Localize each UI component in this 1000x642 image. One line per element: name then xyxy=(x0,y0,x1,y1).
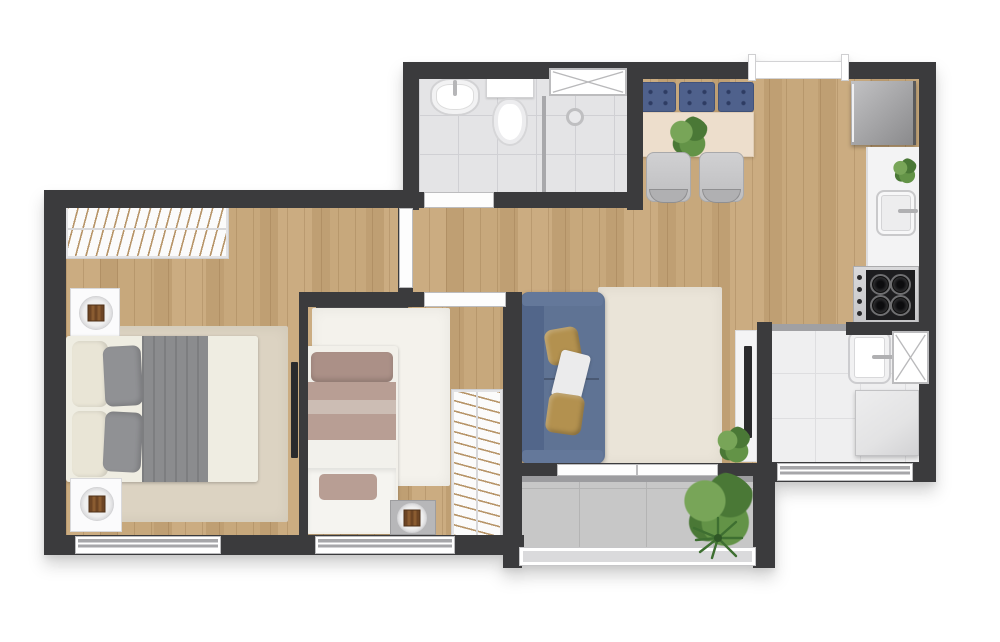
dining-chair-2 xyxy=(699,152,744,202)
floor-plan-canvas xyxy=(0,0,1000,642)
master-bedroom-door xyxy=(399,208,413,288)
cooktop-stove xyxy=(853,266,919,324)
shower-head-icon xyxy=(566,108,584,126)
second-bedroom-window xyxy=(316,537,454,553)
master-bedroom-wall-tv xyxy=(291,362,298,458)
master-bedroom-window xyxy=(76,537,220,553)
wall xyxy=(299,292,308,555)
stove-knob-icon xyxy=(857,311,862,316)
stove-knob-icon xyxy=(857,275,862,280)
dining-bench-cushion-1 xyxy=(640,82,676,112)
floor-plan xyxy=(0,0,1000,642)
burner-icon xyxy=(870,274,891,295)
nightstand-bottom-lamp xyxy=(80,487,114,521)
dining-chair-1 xyxy=(646,152,691,202)
balcony-palm-plant xyxy=(690,514,746,560)
stove-knob-icon xyxy=(857,299,862,304)
wardrobe-divider-line xyxy=(476,392,478,536)
burner-icon xyxy=(890,274,911,295)
wall xyxy=(627,62,643,210)
service-threshold xyxy=(772,324,846,331)
wall xyxy=(403,62,936,79)
sofa-pillow-mustard-2 xyxy=(544,392,585,437)
shower-glass-partition xyxy=(542,96,546,192)
bathroom-door xyxy=(424,192,494,208)
toilet-bowl xyxy=(492,98,528,146)
dining-top-window xyxy=(754,61,845,79)
living-room-rug xyxy=(598,287,722,465)
single-bed-foot-pillow xyxy=(319,474,377,500)
wall xyxy=(299,292,430,307)
kitchen-counter-plant xyxy=(892,158,918,184)
single-bed-blanket-stripe xyxy=(308,400,396,414)
window-post xyxy=(841,54,849,81)
dining-bench-cushion-3 xyxy=(718,82,754,112)
second-bedroom-door xyxy=(424,292,506,307)
washing-machine xyxy=(855,390,919,456)
wall xyxy=(44,190,66,555)
dining-bench-cushion-2 xyxy=(679,82,715,112)
living-corner-plant xyxy=(716,426,752,464)
master-pillow-gray-2 xyxy=(102,411,143,473)
single-bed-pillow xyxy=(311,352,393,382)
service-bottom-window xyxy=(778,464,912,480)
window-post xyxy=(748,54,756,81)
balcony-door-joint xyxy=(636,465,638,475)
wall xyxy=(403,62,419,210)
cooktop-surface xyxy=(866,270,915,320)
burner-icon xyxy=(890,295,911,316)
wall xyxy=(44,190,418,208)
master-bed-foot-sheet xyxy=(208,336,258,482)
shower-window xyxy=(549,68,627,96)
fridge-handle xyxy=(852,84,854,142)
kitchen-faucet xyxy=(898,209,918,213)
kitchen-sink xyxy=(876,190,916,236)
bathroom-sink-faucet xyxy=(453,80,457,96)
sofa-arm-bottom xyxy=(522,450,603,464)
stove-knob-icon xyxy=(857,287,862,292)
sofa-back xyxy=(520,298,544,458)
master-wardrobe xyxy=(66,202,228,258)
master-pillow-cream-2 xyxy=(72,411,108,477)
wardrobe-shelf-line xyxy=(68,228,226,230)
master-pillow-gray-1 xyxy=(102,345,143,407)
side-table-lamp xyxy=(397,503,427,533)
wall xyxy=(503,292,522,568)
service-side-window xyxy=(892,331,929,384)
master-bed-blanket xyxy=(142,336,208,482)
nightstand-top-lamp xyxy=(79,296,113,330)
wall xyxy=(919,62,936,482)
burner-icon xyxy=(870,295,891,316)
single-bed-sheet xyxy=(308,440,396,468)
fridge xyxy=(851,81,916,145)
sofa-arm-top xyxy=(522,292,603,306)
toilet-tank xyxy=(486,78,534,98)
living-room-tv xyxy=(744,346,752,438)
laundry-tub-faucet xyxy=(872,355,894,359)
wall xyxy=(757,322,772,482)
